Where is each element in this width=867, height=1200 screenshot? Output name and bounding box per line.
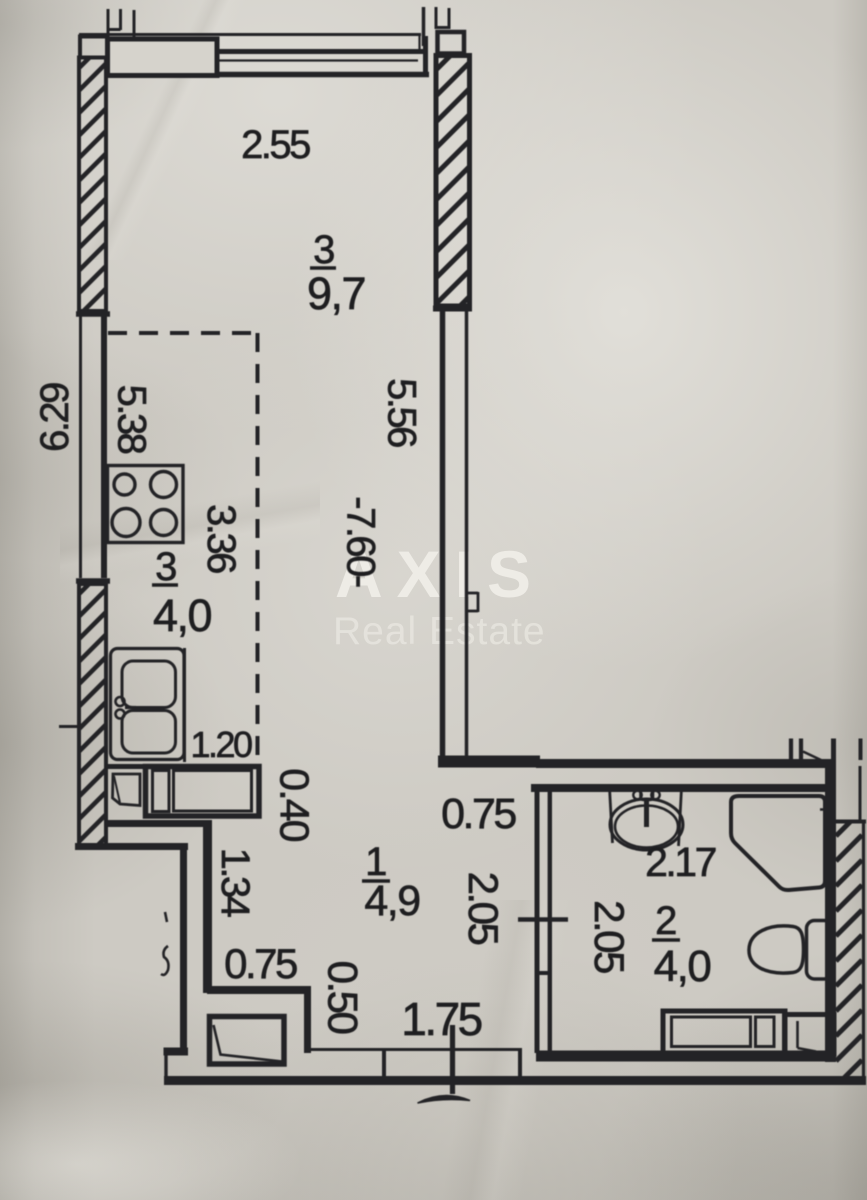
svg-text:2.05: 2.05	[586, 900, 633, 973]
svg-text:3.36: 3.36	[199, 504, 243, 573]
svg-text:9,7: 9,7	[307, 268, 365, 319]
svg-text:4,9: 4,9	[364, 877, 419, 925]
svg-text:5.56: 5.56	[380, 378, 424, 447]
svg-text:6.29: 6.29	[33, 383, 77, 452]
svg-text:2: 2	[655, 899, 676, 943]
svg-text:-7.60-: -7.60-	[339, 496, 383, 587]
svg-text:2.55: 2.55	[241, 123, 310, 167]
svg-text:0.75: 0.75	[224, 940, 297, 987]
svg-text:0.50: 0.50	[320, 961, 367, 1034]
svg-text:1.20: 1.20	[190, 724, 252, 765]
svg-text:2.17: 2.17	[645, 839, 715, 885]
svg-text:2.05: 2.05	[460, 872, 507, 945]
svg-text:4,0: 4,0	[654, 942, 711, 991]
svg-text:1.34: 1.34	[213, 848, 257, 918]
svg-text:3: 3	[313, 228, 334, 272]
svg-text:0.40: 0.40	[272, 768, 318, 842]
svg-text:3: 3	[155, 545, 176, 589]
svg-text:5.38: 5.38	[110, 385, 154, 454]
svg-text:1.75: 1.75	[401, 993, 481, 1045]
svg-text:4,0: 4,0	[153, 590, 212, 641]
svg-text:0.75: 0.75	[441, 790, 516, 838]
